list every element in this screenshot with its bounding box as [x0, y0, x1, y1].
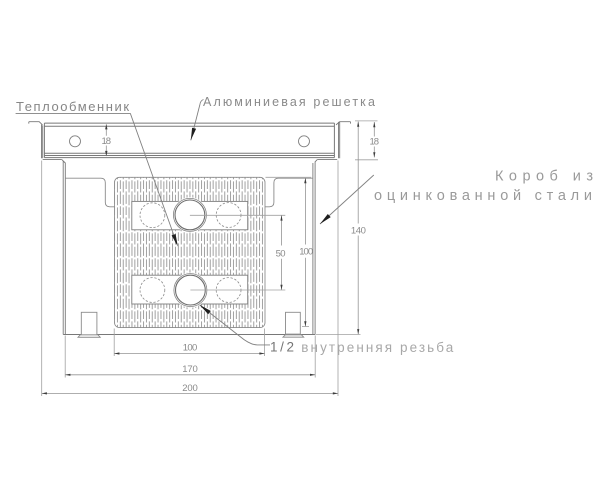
svg-text:Теплообменник: Теплообменник	[16, 99, 129, 114]
svg-text:140: 140	[351, 226, 366, 237]
svg-text:внутренняя резьба: внутренняя резьба	[301, 340, 453, 355]
svg-text:170: 170	[182, 364, 198, 375]
svg-text:18: 18	[370, 136, 380, 147]
svg-text:18: 18	[102, 136, 112, 147]
svg-text:100: 100	[299, 246, 313, 257]
svg-text:200: 200	[182, 383, 198, 394]
svg-text:1/2: 1/2	[270, 339, 294, 354]
svg-text:100: 100	[183, 342, 198, 353]
svg-text:50: 50	[276, 248, 286, 259]
svg-text:Алюминиевая решетка: Алюминиевая решетка	[203, 95, 375, 109]
